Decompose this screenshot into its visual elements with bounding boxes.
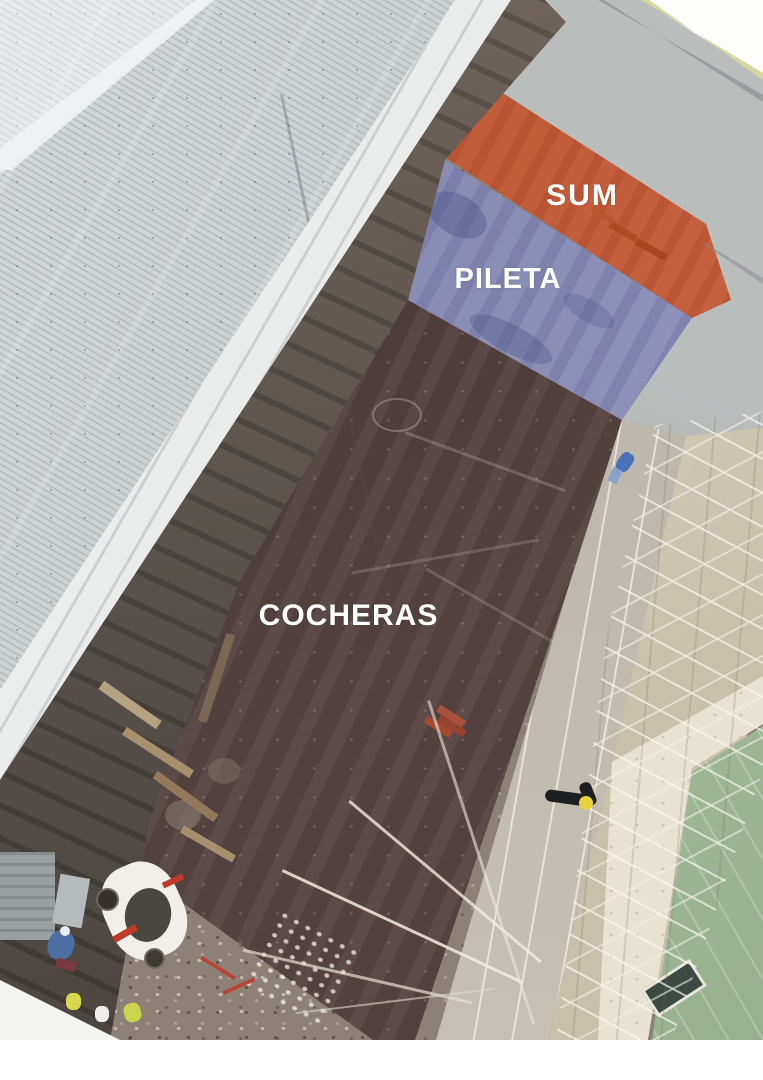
mixer-tower	[0, 852, 55, 940]
label-cocheras: COCHERAS	[256, 601, 441, 631]
worker-white-shirt	[95, 1006, 109, 1022]
bucket-2	[144, 948, 165, 969]
label-sum: SUM	[535, 181, 630, 211]
annotated-aerial-photo-page: SUM PILETA COCHERAS	[0, 0, 763, 1080]
worker-hiviz-1	[66, 993, 81, 1010]
wire-coil-icon	[372, 398, 422, 432]
bottom-white-margin	[0, 1040, 763, 1080]
construction-site-photo: SUM PILETA COCHERAS	[0, 0, 763, 1040]
bucket-1	[96, 888, 119, 911]
mortar-pile-2	[208, 758, 240, 784]
worker-yellow-helmet	[579, 796, 593, 810]
worker-bending-cap	[60, 926, 70, 936]
label-pileta: PILETA	[452, 265, 564, 294]
